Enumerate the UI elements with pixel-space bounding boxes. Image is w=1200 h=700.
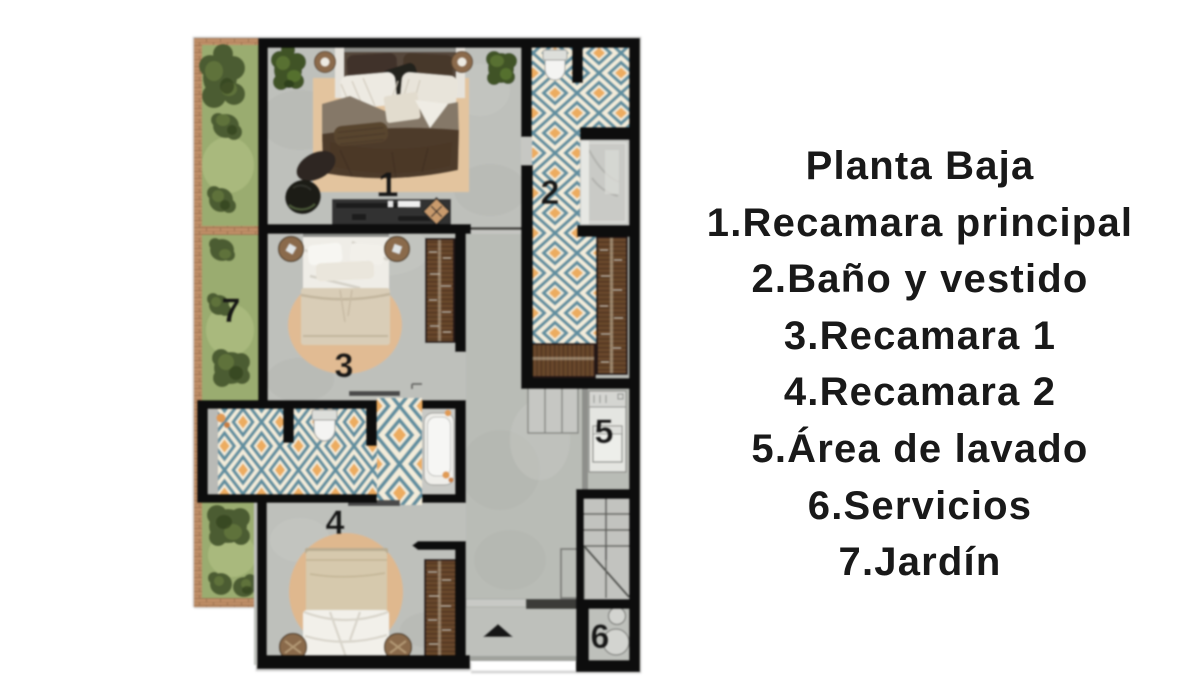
svg-text:1: 1 xyxy=(379,166,398,204)
svg-text:7: 7 xyxy=(222,292,241,330)
svg-text:3: 3 xyxy=(335,347,354,385)
svg-text:5: 5 xyxy=(595,413,614,451)
svg-text:4: 4 xyxy=(326,504,345,542)
svg-text:6: 6 xyxy=(591,618,610,656)
svg-text:2: 2 xyxy=(541,174,560,212)
